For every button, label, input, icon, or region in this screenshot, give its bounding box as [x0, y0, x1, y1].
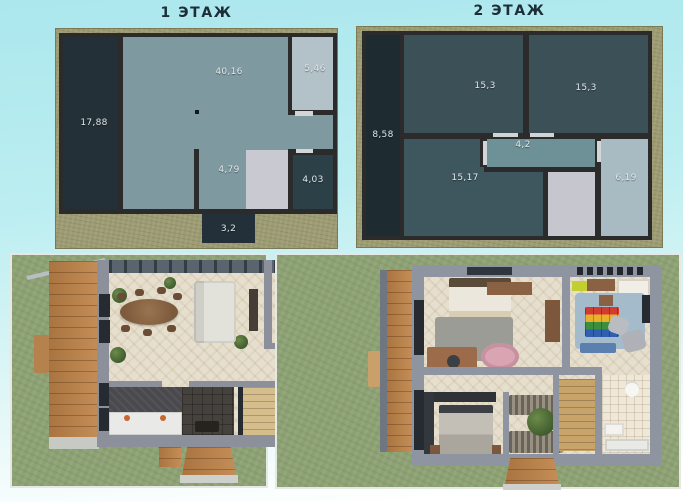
door-gap-pantry — [295, 111, 313, 116]
area-label-terrace: 17,88 — [80, 118, 107, 128]
wall-living-bath-v — [264, 260, 272, 348]
entry-porch-deck — [182, 447, 236, 475]
area-label-porch: 3,2 — [221, 224, 236, 234]
floor1-plan-panel: 1 ЭТАЖ 17,88 40,16 5,46 4,79 4,03 3, — [0, 0, 341, 250]
floor1-ground: 17,88 40,16 5,46 4,79 4,03 3,2 — [55, 28, 338, 249]
wall-mid2 — [424, 367, 599, 375]
balcony-table — [368, 351, 380, 387]
nightstand — [430, 445, 440, 454]
area-label-hall2: 4,2 — [515, 140, 530, 150]
area-label-bedroom-right: 15,3 — [575, 83, 596, 93]
stairs-plan2 — [548, 172, 595, 236]
floor2-ground: 8,58 15,3 15,3 4,2 15,17 6,19 — [356, 26, 663, 248]
pink-armchair — [481, 343, 519, 370]
door-gap-top-right — [530, 133, 554, 137]
stairs-render2 — [559, 379, 595, 451]
side-deck-piece — [159, 447, 181, 467]
wall-stub — [194, 149, 199, 209]
balcony-railing — [380, 270, 387, 452]
entry-porch-deck2 — [505, 458, 559, 484]
wall-under-hall2 — [484, 167, 548, 172]
room-bathroom2 — [601, 139, 648, 236]
kids-table — [599, 295, 613, 306]
floor2-render-panel — [275, 253, 681, 489]
pergola-beams — [109, 260, 279, 273]
wall-bedrooms-v — [562, 265, 570, 367]
room-open-strip — [288, 115, 333, 149]
window-panel — [414, 390, 424, 450]
window-panel — [99, 294, 110, 317]
area-label-bathroom1: 4,03 — [302, 175, 323, 185]
dark-wardrobe — [434, 392, 496, 402]
gray-bed — [439, 405, 493, 454]
porch-block: 3,2 — [202, 214, 255, 243]
window-panel — [99, 320, 110, 343]
deck-terrace — [49, 261, 99, 437]
area-label-living: 40,16 — [215, 67, 242, 77]
outdoor-table — [34, 335, 49, 373]
floor2-plan-panel: 2 ЭТАЖ 8,58 15,3 15,3 4,2 — [341, 0, 683, 250]
tv-console — [249, 289, 258, 331]
wall-bath2-v — [595, 367, 602, 454]
hall-bench — [195, 421, 219, 432]
area-label-bedroom-bottom: 15,17 — [451, 173, 478, 183]
sofa — [194, 281, 236, 343]
door-gap-hall2-left — [483, 141, 487, 165]
deck-step — [49, 437, 99, 449]
room-hall2 — [487, 139, 595, 167]
bath-sink-cabinet — [604, 423, 624, 436]
nightstand — [492, 445, 501, 454]
kitchen-items — [124, 415, 130, 421]
kids-bench — [580, 343, 616, 353]
column-dot — [195, 110, 199, 114]
floor1-walls: 17,88 40,16 5,46 4,79 4,03 — [59, 33, 337, 214]
balcony-deck — [387, 270, 412, 452]
area-label-balcony: 8,58 — [372, 130, 393, 140]
closet-plant — [527, 408, 555, 436]
area-label-pantry: 5,46 — [304, 64, 325, 74]
dining-table — [120, 299, 178, 325]
door-gap-bathroom1 — [296, 149, 313, 153]
door-gap-top-left — [493, 133, 518, 137]
dresser — [545, 300, 560, 342]
floor1-title: 1 ЭТАЖ — [55, 5, 338, 21]
window-panel — [414, 300, 424, 355]
area-label-bedroom-left: 15,3 — [474, 81, 495, 91]
porch-step-edge — [180, 475, 238, 483]
shower-tray — [605, 439, 649, 451]
room-bedroom-left — [404, 35, 523, 133]
kids-tv — [642, 295, 650, 323]
wardrobe-shelf — [487, 282, 532, 295]
floor1-render-panel — [10, 253, 268, 488]
window-lintel-kidsroom — [577, 267, 643, 275]
toy-box — [572, 281, 587, 291]
kitchen-counter — [109, 412, 182, 435]
porch-step-edge2 — [503, 484, 561, 490]
plant-pot — [164, 277, 176, 289]
area-label-bathroom2: 6,19 — [615, 173, 636, 183]
stairs-plan1 — [246, 150, 288, 209]
dining-chairs — [117, 293, 126, 300]
page-background: 1 ЭТАЖ 17,88 40,16 5,46 4,79 4,03 3, — [0, 0, 683, 502]
kids-shelf — [587, 279, 615, 291]
plant-pot — [110, 347, 126, 363]
window-lintel-bedroom — [467, 267, 512, 275]
floor2-walls: 8,58 15,3 15,3 4,2 15,17 6,19 — [362, 31, 652, 240]
toilet — [625, 381, 639, 397]
area-label-hall1: 4,79 — [218, 165, 239, 175]
plant-pot — [234, 335, 248, 349]
floor2-title: 2 ЭТАЖ — [356, 3, 663, 19]
